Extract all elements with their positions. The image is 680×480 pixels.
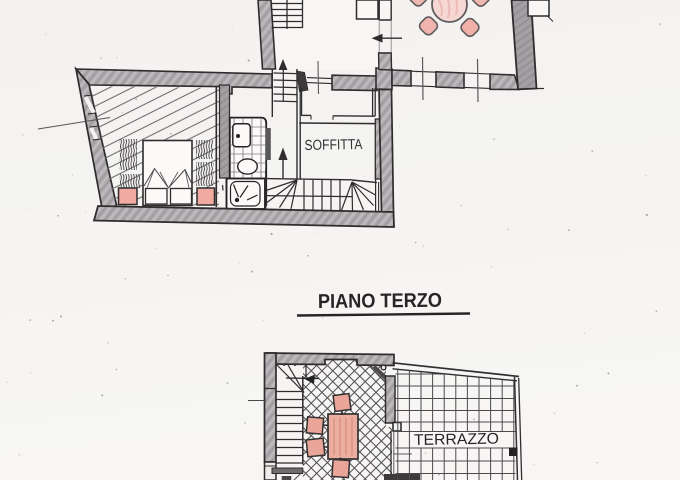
svg-text:SOFFITTA: SOFFITTA [304, 137, 363, 154]
svg-text:TERRAZZO: TERRAZZO [414, 431, 499, 449]
svg-text:PIANO TERZO: PIANO TERZO [318, 290, 442, 313]
